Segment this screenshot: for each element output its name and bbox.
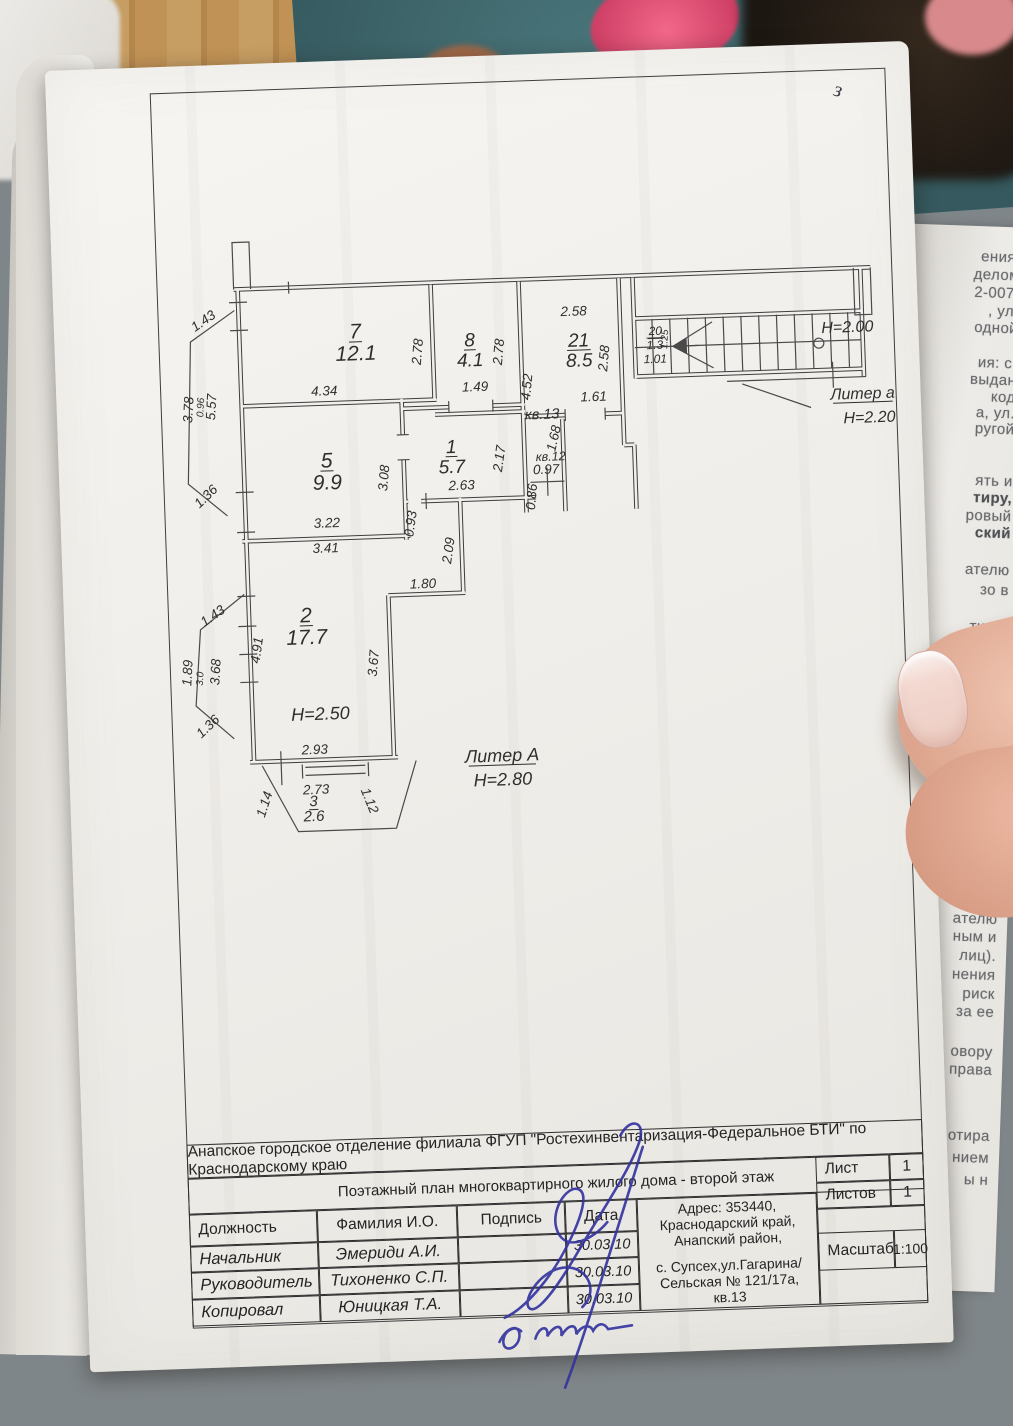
plan-label: 2.58 <box>559 303 587 319</box>
plan-label: 3.68 <box>207 658 223 686</box>
next-page-text-fragment: ровый <box>965 507 1011 526</box>
finger <box>884 618 1013 918</box>
next-page-text-fragment: тиру, <box>973 489 1012 507</box>
plan-label: 4.34 <box>311 383 338 399</box>
address-line2: с. Супсех,ул.Гагарина/Сельская № 121/17а… <box>644 1254 816 1308</box>
col-header-role: Должность <box>189 1210 318 1246</box>
col-header-date: Дата <box>565 1199 638 1233</box>
sheet-value: 1 <box>889 1153 924 1180</box>
height-mark-circle <box>814 338 824 348</box>
plan-label: 1.01 <box>643 351 667 366</box>
next-page-text-fragment: за ее <box>956 1003 995 1021</box>
plan-label: Литер А <box>464 744 540 767</box>
plan-label: кв.13 <box>525 406 560 423</box>
plan-label: 1.14 <box>253 789 275 819</box>
next-page-text-fragment: отира <box>948 1126 991 1144</box>
plan-label: 7 <box>349 320 363 343</box>
next-page-text-fragment: 2-007, <box>974 284 1013 303</box>
plan-label: 2.17 <box>490 444 509 474</box>
plan-label: 1.25 <box>659 329 671 349</box>
plan-label: H=2.50 <box>291 703 350 725</box>
plan-label: 2.93 <box>300 742 328 758</box>
plan-label: 1.12 <box>358 786 382 816</box>
next-page-text-fragment: зо в <box>980 581 1009 599</box>
address-line1: Адрес: 353440, Краснодарский край, Анапс… <box>642 1196 814 1250</box>
next-page-text-fragment: риск <box>962 985 995 1003</box>
plan-label: 1.89 <box>179 659 195 687</box>
floor-plan-drawing: 712.184.1218.515.759.9217.732.64.342.782… <box>147 207 929 863</box>
plan-label: 0.97 <box>533 461 560 477</box>
next-page-text-fragment: ский <box>975 524 1011 542</box>
row-date: 30.03.10 <box>566 1231 639 1259</box>
plan-label: 3.41 <box>312 540 339 556</box>
next-page-text-fragment: ателю <box>965 561 1010 580</box>
plan-label: 3.78 <box>180 396 196 424</box>
sheets-label: Листов <box>816 1180 891 1209</box>
finger-body <box>895 736 1013 931</box>
next-page-text-fragment: лиц). <box>959 947 996 965</box>
plan-label: 2.78 <box>409 337 426 366</box>
next-page-text-fragment: ия: с. <box>978 354 1013 372</box>
next-page-text-fragment: , ул. <box>988 302 1013 320</box>
next-page-text-fragment: ения: <box>981 248 1013 266</box>
plan-label: 1.61 <box>580 389 607 405</box>
plan-label: 17.7 <box>286 625 329 649</box>
plan-label: 8.5 <box>566 350 594 372</box>
next-page-text-fragment: овору <box>950 1043 993 1061</box>
next-page-text-fragment: ным и <box>953 928 998 947</box>
scale-label: Масштаб <box>818 1230 895 1271</box>
plan-label: 2.73 <box>302 782 330 798</box>
plan-label: 5.7 <box>438 457 467 479</box>
address-cell: Адрес: 353440, Краснодарский край, Анапс… <box>637 1193 821 1311</box>
next-page-text-fragment: делом <box>973 266 1013 285</box>
row-name: Юницкая Т.А. <box>320 1290 461 1322</box>
next-page-text-fragment: ругой <box>975 420 1013 438</box>
plan-label: H=2.20 <box>843 409 896 428</box>
plan-label: 1 <box>446 437 457 458</box>
plan-label: 12.1 <box>335 342 377 366</box>
plan-label: H=2.00 <box>821 318 874 337</box>
sheets-value: 1 <box>890 1179 925 1206</box>
plan-label: 1.43 <box>197 602 228 630</box>
row-date: 30.03.10 <box>567 1257 640 1286</box>
plan-label: 1.49 <box>462 379 489 395</box>
plan-label: 2.63 <box>447 477 475 493</box>
plan-label: 0.93 <box>401 509 420 538</box>
plan-label: 9.9 <box>312 471 342 495</box>
next-page-text-fragment: права <box>949 1060 993 1078</box>
floor-plan-sheet: з <box>45 41 954 1372</box>
plan-label: 5.57 <box>203 393 219 421</box>
col-header-name: Фамилия И.О. <box>317 1205 458 1242</box>
scale-value: 1:100 <box>894 1229 927 1268</box>
sheet-label: Лист <box>815 1154 890 1183</box>
col-header-sign: Подпись <box>457 1202 566 1238</box>
plan-label: 3.08 <box>375 464 392 492</box>
plan-label: 1.80 <box>410 576 437 592</box>
title-block: Анапское городское отделение филиала ФГУ… <box>186 1119 928 1327</box>
plan-label: 0.86 <box>523 483 540 511</box>
plan-label: 4.1 <box>457 350 484 372</box>
row-date: 30.03.10 <box>568 1284 641 1313</box>
plan-label: 1.43 <box>188 307 219 335</box>
plan-label: 2.6 <box>302 808 325 826</box>
plan-label: Н=2.80 <box>473 768 532 790</box>
next-page-text-fragment: нения <box>952 966 996 985</box>
stair-direction-arrowhead <box>673 338 688 354</box>
row-role: Копировал <box>192 1295 321 1326</box>
next-page-text-fragment: выдан <box>970 371 1013 390</box>
plan-label: 8 <box>464 330 476 351</box>
plan-label: 2.78 <box>490 338 507 367</box>
plan-dimension-labels: 712.184.1218.515.759.9217.732.64.342.782… <box>166 283 909 829</box>
plan-label: 2.09 <box>439 536 458 566</box>
plan-label: 1.36 <box>193 712 223 741</box>
plan-label: 2.58 <box>595 344 612 373</box>
plan-label: 5 <box>320 449 333 472</box>
plan-label: 2 <box>299 604 313 627</box>
next-page-text-fragment: ы н <box>964 1171 989 1189</box>
plan-label: 3.0 <box>195 671 207 686</box>
plan-label: 3.22 <box>313 515 340 531</box>
next-page-text-fragment: одной <box>974 319 1013 338</box>
plan-label: 21 <box>567 330 590 352</box>
plan-label: 4.52 <box>518 373 535 401</box>
plan-label: 4.91 <box>248 636 267 664</box>
next-page-text-fragment: ять и <box>975 472 1013 490</box>
next-page-text-fragment: нием <box>952 1149 989 1167</box>
photo-of-floor-plan-document: { "accent_colors": { "paper": "#f1efec",… <box>0 0 1013 1350</box>
plan-label: 3.67 <box>365 649 382 677</box>
